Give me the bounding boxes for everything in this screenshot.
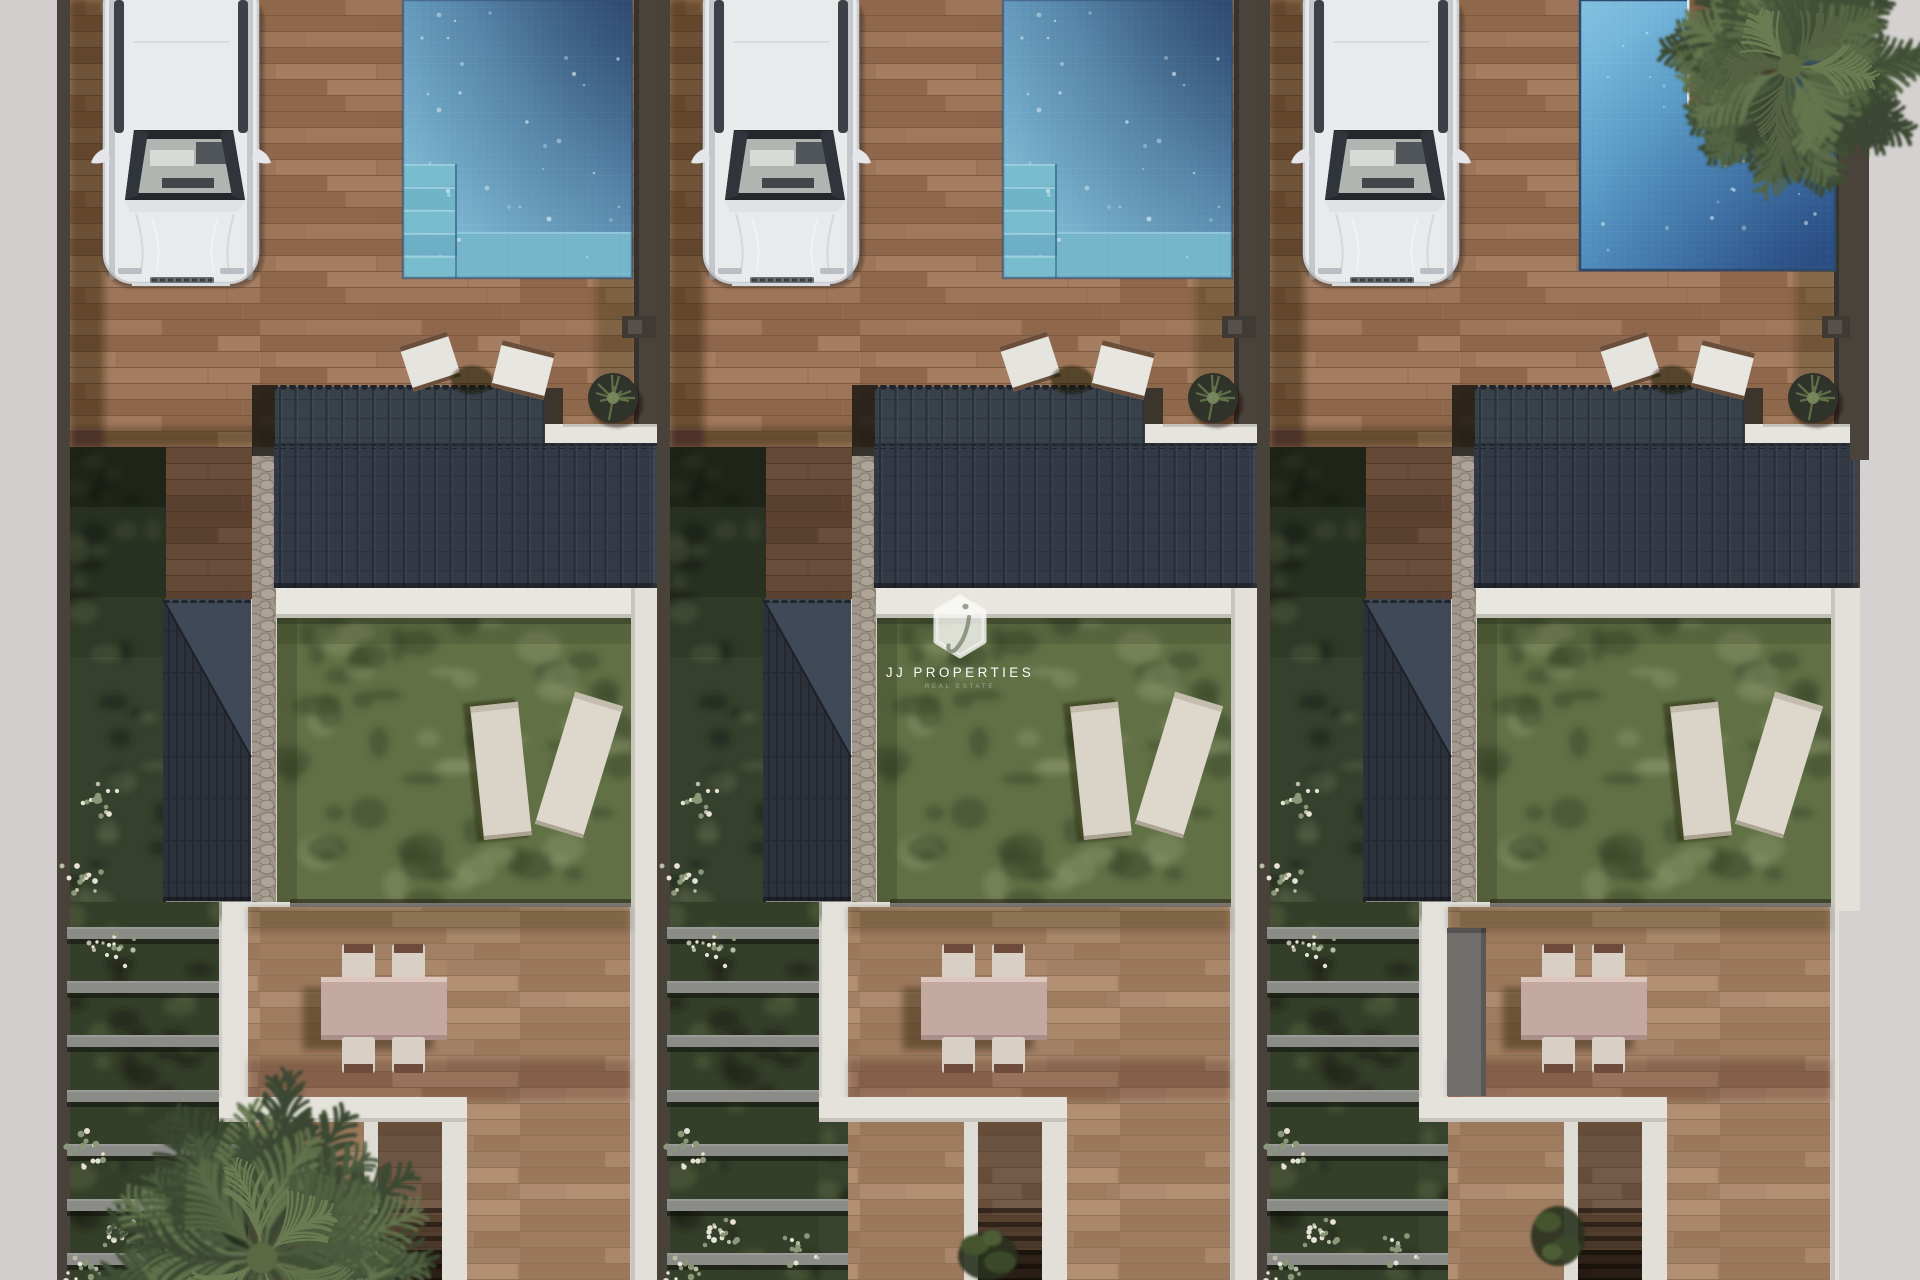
svg-text:JJ PROPERTIES: JJ PROPERTIES (886, 665, 1034, 680)
svg-text:REAL ESTATE: REAL ESTATE (925, 684, 995, 690)
